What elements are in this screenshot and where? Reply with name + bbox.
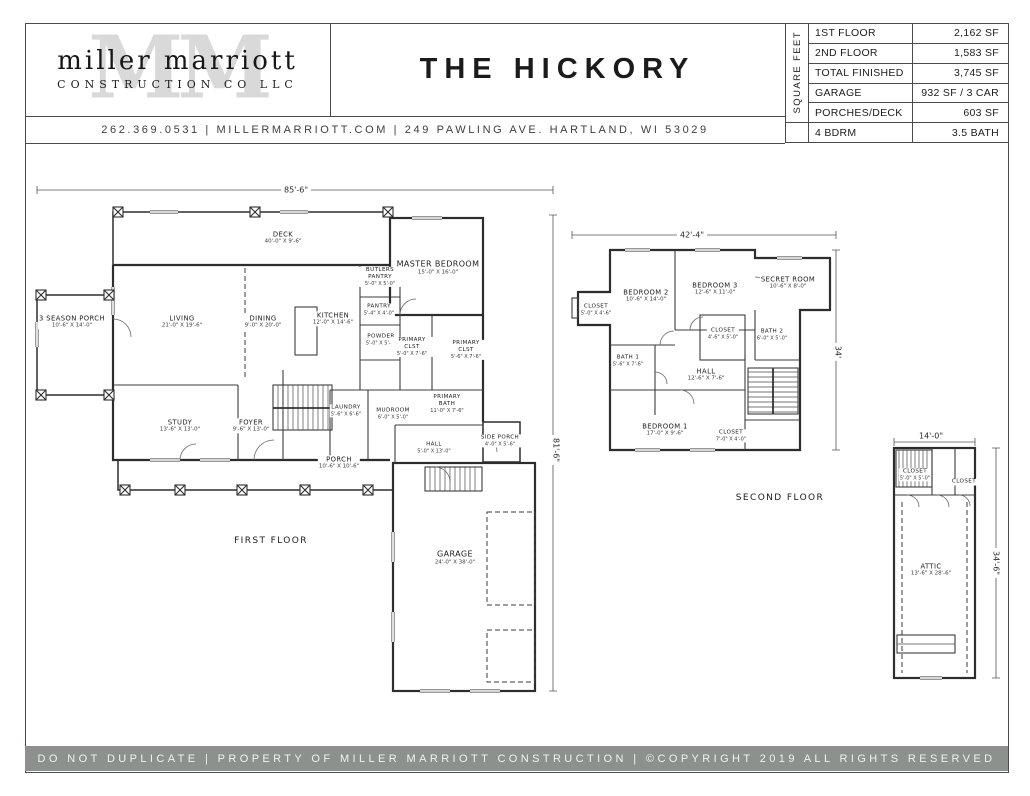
window-marks: [920, 677, 942, 679]
spec-table: SQUARE FEET 1ST FLOOR 2,162 SF 2ND FLOOR…: [785, 23, 1009, 143]
spec-value: 3.5 BATH: [912, 122, 1009, 142]
spec-value: 932 SF / 3 CAR: [912, 83, 1009, 103]
room-label-hall: HALL5'-0" X 13'-0": [416, 441, 451, 454]
door-arcs: [907, 495, 970, 507]
attic-plan: 14'-0" 34'-6" CLOSET5'-0" X 5'-0" CLOSET…: [885, 430, 1020, 695]
spec-value: 1,583 SF: [912, 43, 1009, 63]
room-label-foyer: FOYER9'-6" X 13'-0": [232, 418, 271, 433]
floor-plan-sheet: MM miller marriott CONSTRUCTION CO LLC T…: [0, 0, 1030, 796]
exterior-walls: [37, 212, 535, 691]
room-label-dining: DINING9'-0" X 20'-0": [244, 314, 283, 329]
room-label-closet-br: CLOSET7'-0" X 4'-0": [715, 429, 747, 442]
room-label-garage: GARAGE24'-0" X 38'-0": [434, 550, 476, 567]
room-label-bedroom-3: BEDROOM 312'-6" X 11'-0": [691, 281, 739, 296]
room-label-laundry: LAUNDRY5'-6" X 6'-6": [330, 404, 362, 417]
room-label-bath-1: BATH 15'-6" X 7'-6": [612, 354, 644, 367]
room-label-closet-attic-right: CLOSET: [951, 479, 977, 486]
first-floor-svg: [30, 182, 570, 762]
room-label-primary-clst-2: PRIMARY CLST5'-6" X 7'-6": [445, 340, 487, 360]
dim-height: 81'-6": [552, 435, 561, 465]
dim-height: 34'-6": [992, 548, 1001, 578]
porch-columns: [36, 207, 393, 495]
room-label-closet-left: CLOSET5'-0" X 4'-6": [580, 303, 612, 316]
room-label-bath-2: BATH 26'-0" X 5'-0": [756, 328, 788, 341]
dim-width: 42'-4": [677, 231, 707, 240]
plan-caption-first-floor: FIRST FLOOR: [234, 536, 308, 546]
room-label-butlers-pantry: BUTLERS PANTRY5'-0" X 5'-0": [359, 267, 401, 287]
room-label-primary-clst-1: PRIMARY CLST5'-0" X 7'-6": [391, 337, 433, 357]
room-label-hall: HALL12'-6" X 7'-6": [687, 367, 726, 382]
contact-bar: 262.369.0531 | MILLERMARRIOTT.COM | 249 …: [25, 116, 785, 144]
dim-height: 34': [834, 343, 843, 361]
room-label-closet-mid: CLOSET4'-6" X 5'-0": [707, 327, 739, 340]
room-label-pantry: PANTRY5'-4" X 4'-0": [363, 303, 395, 316]
room-label-mudroom: MUDROOM6'-0" X 5'-0": [375, 407, 411, 420]
dim-width: 14'-0": [916, 432, 946, 441]
room-label-study: STUDY13'-6" X 13'-0": [159, 418, 201, 433]
room-label-side-porch: SIDE PORCH4'-0" X 5'-6": [479, 434, 521, 447]
spec-label: PORCHES/DECK: [808, 102, 912, 122]
plan-caption-second-floor: SECOND FLOOR: [736, 493, 824, 503]
room-label-living: LIVING21'-0" X 19'-6": [161, 314, 203, 329]
spec-value: 3,745 SF: [912, 63, 1009, 83]
room-label-bedroom-1: BEDROOM 117'-0" X 9'-6": [641, 422, 689, 437]
spec-value: 603 SF: [912, 102, 1009, 122]
room-label-closet-attic-left: CLOSET5'-0" X 5'-0": [899, 468, 931, 481]
room-label-kitchen: KITCHEN12'-0" X 14'-6": [312, 311, 354, 326]
logo-name: miller marriott: [57, 48, 298, 75]
spec-label: TOTAL FINISHED: [808, 63, 912, 83]
second-floor-plan: 42'-4" 34' SECOND FLOOR BEDROOM 210'-6" …: [565, 222, 855, 512]
room-label-bedroom-2: BEDROOM 210'-6" X 14'-0": [622, 288, 670, 303]
company-logo: MM miller marriott CONSTRUCTION CO LLC: [25, 23, 330, 116]
page-title: THE HICKORY: [420, 53, 696, 86]
room-label-master-bedroom: MASTER BEDROOM15'-0" X 16'-0": [396, 260, 481, 277]
room-label-porch: PORCH10'-6" X 10'-6": [318, 455, 360, 470]
spec-value: 2,162 SF: [912, 23, 1009, 43]
title-box: THE HICKORY: [330, 23, 785, 116]
room-label-deck: DECK40'-0" X 9'-6": [264, 230, 303, 245]
spec-label: GARAGE: [808, 83, 912, 103]
logo-subtitle: CONSTRUCTION CO LLC: [57, 78, 298, 91]
room-label-primary-bath: PRIMARY BATH11'-0" X 7'-6": [426, 394, 468, 414]
spec-corner-cell: [786, 122, 808, 142]
dim-width: 85'-6": [281, 186, 311, 195]
spec-side-label: SQUARE FEET: [786, 23, 808, 122]
room-label-secret-room: SECRET ROOM10'-6" X 8'-0": [760, 275, 816, 290]
spec-label: 1ST FLOOR: [808, 23, 912, 43]
footer-text: DO NOT DUPLICATE | PROPERTY OF MILLER MA…: [38, 753, 996, 765]
footer-bar: DO NOT DUPLICATE | PROPERTY OF MILLER MA…: [25, 746, 1008, 771]
spec-label: 2ND FLOOR: [808, 43, 912, 63]
room-label-3-season-porch: 3 SEASON PORCH10'-6" X 14'-0": [38, 314, 106, 329]
spec-label: 4 BDRM: [808, 122, 912, 142]
room-label-attic: ATTIC13'-6" X 28'-6": [910, 562, 952, 577]
first-floor-plan: 85'-6" 81'-6" FIRST FLOOR DECK40'-0" X 9…: [30, 182, 570, 762]
